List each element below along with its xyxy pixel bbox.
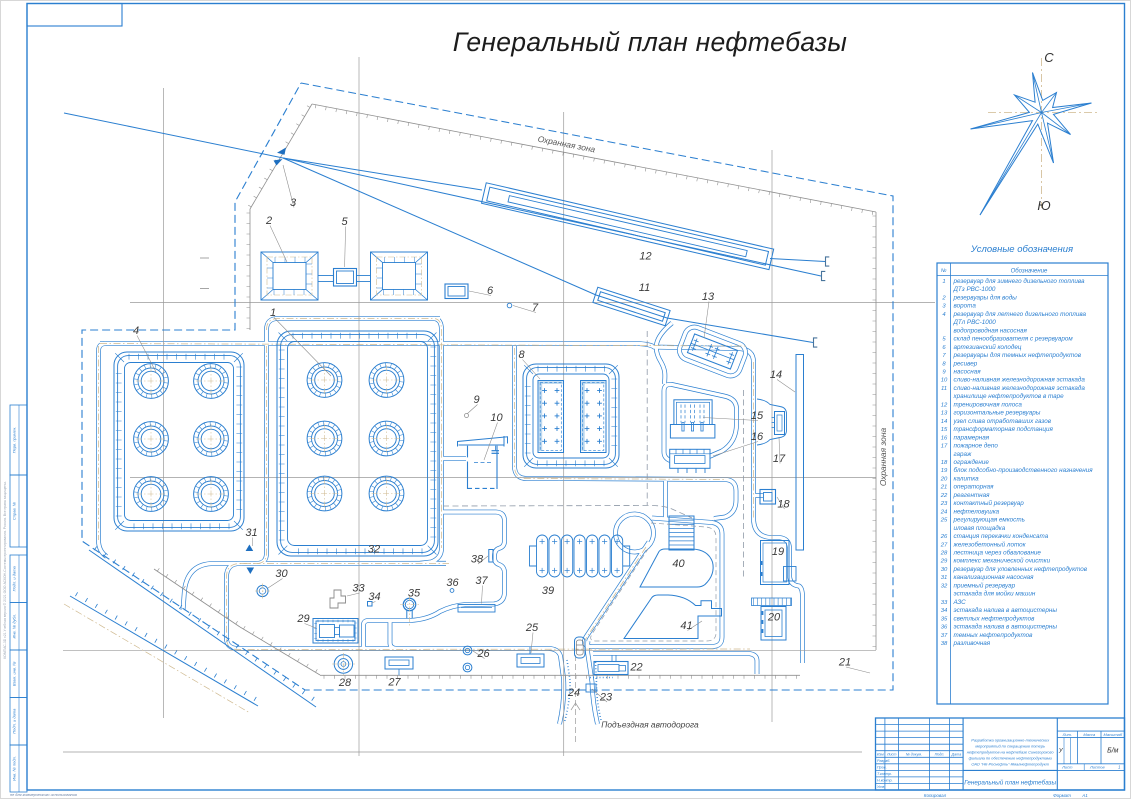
svg-text:пожарное депо: пожарное депо: [954, 442, 999, 450]
svg-text:узел слива отработавших газов: узел слива отработавших газов: [953, 417, 1052, 425]
svg-text:Ю: Ю: [1037, 198, 1050, 213]
svg-text:21: 21: [940, 485, 948, 491]
svg-text:резервуары для воды: резервуары для воды: [953, 294, 1018, 302]
svg-text:иловая площадка: иловая площадка: [954, 524, 1006, 532]
svg-text:23: 23: [599, 692, 613, 704]
svg-text:калитка: калитка: [954, 476, 980, 483]
svg-text:темных нефтепродуктов: темных нефтепродуктов: [954, 631, 1034, 639]
svg-text:11: 11: [941, 386, 947, 392]
svg-text:18: 18: [941, 460, 948, 466]
svg-text:нефтеловушка: нефтеловушка: [954, 508, 1000, 515]
svg-text:мероприятий по сокращению поте: мероприятий по сокращению потерь: [975, 744, 1045, 749]
svg-text:33: 33: [941, 600, 948, 606]
svg-text:№: №: [941, 268, 947, 274]
svg-text:35: 35: [941, 616, 948, 622]
svg-text:склад пенообразователя с резер: склад пенообразователя с резервуаром: [954, 335, 1074, 343]
svg-text:17: 17: [773, 453, 786, 465]
svg-text:водопроводная насосная: водопроводная насосная: [954, 326, 1028, 334]
svg-text:19: 19: [941, 468, 948, 474]
svg-text:20: 20: [767, 612, 781, 624]
svg-text:31: 31: [245, 527, 257, 539]
svg-text:Взам. инв. №: Взам. инв. №: [12, 661, 17, 686]
svg-text:парамерная: парамерная: [954, 434, 990, 441]
svg-text:9: 9: [473, 394, 479, 406]
svg-text:33: 33: [352, 583, 365, 595]
svg-text:тренировочная полоса: тренировочная полоса: [954, 401, 1023, 408]
svg-text:лестница через обвалование: лестница через обвалование: [953, 549, 1042, 557]
svg-text:станция перекачки конденсата: станция перекачки конденсата: [954, 532, 1049, 540]
svg-text:сливо-наливная железнодорожная: сливо-наливная железнодорожная эстакада: [954, 384, 1086, 392]
svg-text:гараж: гараж: [954, 451, 973, 458]
svg-text:21: 21: [838, 657, 851, 669]
svg-text:Подъездная автодорога: Подъездная автодорога: [601, 720, 699, 730]
svg-text:железобетонный лоток: железобетонный лоток: [953, 540, 1027, 548]
svg-text:24: 24: [567, 687, 580, 699]
svg-text:Масштаб: Масштаб: [1103, 732, 1122, 737]
svg-text:регулирующая емкость: регулирующая емкость: [953, 517, 1025, 524]
svg-text:32: 32: [941, 583, 948, 589]
svg-text:артезианский колодец: артезианский колодец: [954, 343, 1022, 351]
svg-text:АЗС: АЗС: [953, 599, 967, 606]
svg-text:2: 2: [941, 296, 946, 302]
svg-text:Инв. № дубл.: Инв. № дубл.: [12, 614, 17, 639]
svg-text:резервуар для летнего дизельно: резервуар для летнего дизельного топлива: [953, 310, 1087, 318]
svg-text:30: 30: [941, 567, 948, 573]
svg-text:Инв. № подл.: Инв. № подл.: [12, 756, 17, 781]
svg-text:Масса: Масса: [1083, 732, 1096, 737]
svg-text:6: 6: [487, 285, 494, 297]
svg-text:Лист: Лист: [1061, 765, 1073, 770]
svg-text:41: 41: [680, 620, 692, 632]
svg-text:горизонтальные резервуары: горизонтальные резервуары: [954, 410, 1041, 417]
svg-text:3: 3: [290, 197, 297, 209]
svg-text:Утв.: Утв.: [877, 785, 885, 789]
svg-text:34: 34: [941, 608, 948, 614]
svg-text:16: 16: [751, 431, 764, 443]
svg-text:Генеральный план нефтебазы: Генеральный план нефтебазы: [453, 27, 847, 57]
svg-text:ДТл РВС-1000: ДТл РВС-1000: [953, 319, 997, 326]
svg-text:25: 25: [940, 518, 948, 524]
svg-text:32: 32: [368, 544, 380, 556]
svg-text:комплекс механической очистки: комплекс механической очистки: [954, 557, 1051, 565]
svg-text:разливочная: разливочная: [953, 640, 991, 647]
svg-text:1: 1: [270, 307, 276, 319]
svg-text:Условные обозначения: Условные обозначения: [970, 244, 1073, 255]
svg-text:Охранная зона: Охранная зона: [878, 428, 888, 487]
svg-text:Лист: Лист: [886, 752, 897, 756]
svg-text:28: 28: [940, 551, 948, 557]
svg-text:Листов: Листов: [1089, 765, 1105, 770]
svg-text:27: 27: [387, 677, 401, 689]
svg-text:ОАО "НК-Роснефть"-Ямалнефтепро: ОАО "НК-Роснефть"-Ямалнефтепродукт: [971, 762, 1049, 767]
svg-text:36: 36: [446, 577, 459, 589]
svg-text:17: 17: [941, 444, 948, 450]
svg-text:14: 14: [770, 369, 782, 381]
svg-text:20: 20: [940, 477, 948, 483]
svg-text:26: 26: [476, 648, 490, 660]
svg-text:Обозначение: Обозначение: [1011, 269, 1048, 275]
svg-text:10: 10: [490, 412, 503, 424]
svg-text:Б/м: Б/м: [1107, 748, 1119, 755]
svg-text:Лит.: Лит.: [1062, 732, 1072, 737]
svg-text:Подп.: Подп.: [935, 752, 945, 756]
svg-text:Перв. примен.: Перв. примен.: [12, 427, 17, 454]
svg-text:18: 18: [777, 499, 790, 511]
svg-text:1: 1: [1118, 765, 1120, 770]
svg-text:Н.контр.: Н.контр.: [877, 779, 893, 783]
svg-text:24: 24: [940, 509, 948, 515]
svg-text:контактный резервуар: контактный резервуар: [954, 499, 1025, 507]
svg-text:38: 38: [941, 641, 948, 647]
svg-text:С: С: [1044, 50, 1054, 65]
svg-text:29: 29: [296, 613, 309, 625]
svg-text:ресивер: ресивер: [953, 360, 978, 367]
svg-text:27: 27: [940, 542, 948, 548]
svg-text:39: 39: [542, 585, 554, 597]
svg-text:12: 12: [941, 402, 948, 408]
svg-text:ДТз РВС-1000: ДТз РВС-1000: [953, 286, 996, 293]
svg-text:А1: А1: [1081, 793, 1088, 798]
svg-text:насосная: насосная: [954, 369, 982, 376]
svg-text:Дата: Дата: [951, 752, 962, 756]
svg-text:эстакада налива в автоцистерны: эстакада налива в автоцистерны: [954, 623, 1058, 631]
svg-text:25: 25: [525, 622, 539, 634]
svg-text:7: 7: [532, 302, 539, 314]
svg-text:5: 5: [342, 216, 349, 228]
svg-text:резервуары для темных нефтепро: резервуары для темных нефтепродуктов: [953, 351, 1082, 359]
svg-text:30: 30: [275, 568, 288, 580]
svg-text:22: 22: [940, 493, 948, 499]
svg-text:15: 15: [751, 410, 764, 422]
svg-text:светлых нефтепродуктов: светлых нефтепродуктов: [954, 614, 1036, 622]
svg-text:36: 36: [941, 625, 948, 631]
svg-text:нефтепродуктов на нефтебазе Си: нефтепродуктов на нефтебазе Синегорского: [967, 750, 1055, 755]
svg-text:эстакада для мойки машин: эстакада для мойки машин: [954, 590, 1036, 598]
svg-text:14: 14: [941, 419, 948, 425]
svg-text:8: 8: [518, 349, 525, 361]
svg-text:1: 1: [942, 279, 945, 285]
svg-text:Подп. и дата: Подп. и дата: [12, 708, 17, 734]
svg-text:28: 28: [338, 677, 352, 689]
svg-text:Копировал: Копировал: [924, 793, 947, 798]
svg-text:29: 29: [940, 559, 948, 565]
svg-text:сливо-наливная железнодорожная: сливо-наливная железнодорожная эстакада: [954, 376, 1086, 384]
svg-text:2: 2: [265, 215, 272, 227]
svg-text:12: 12: [639, 251, 651, 263]
svg-text:ограждение: ограждение: [954, 458, 990, 466]
svg-text:Разработка организационно-техн: Разработка организационно-технических: [971, 738, 1050, 743]
svg-text:канализационная насосная: канализационная насосная: [954, 574, 1035, 581]
svg-text:19: 19: [772, 546, 784, 558]
svg-text:приемный резервуар: приемный резервуар: [954, 581, 1016, 589]
svg-text:резервуар для уловленных нефте: резервуар для уловленных нефтепродуктов: [953, 565, 1088, 573]
svg-text:Генеральный план нефтебазы: Генеральный план нефтебазы: [964, 779, 1056, 787]
svg-text:резервуар для зимнего дизельно: резервуар для зимнего дизельного топлива: [953, 277, 1086, 285]
svg-text:38: 38: [471, 554, 484, 566]
svg-text:Подп. и дата: Подп. и дата: [12, 566, 17, 592]
svg-text:ворота: ворота: [954, 303, 977, 310]
svg-text:23: 23: [940, 501, 948, 507]
svg-text:№ докум.: № докум.: [906, 752, 922, 756]
svg-text:37: 37: [941, 633, 948, 639]
svg-text:Справ. №: Справ. №: [12, 501, 17, 520]
svg-text:Изм: Изм: [877, 752, 884, 756]
svg-text:10: 10: [941, 378, 948, 384]
svg-text:13: 13: [941, 411, 948, 417]
svg-text:31: 31: [941, 575, 948, 581]
svg-text:34: 34: [368, 591, 380, 603]
svg-text:26: 26: [940, 534, 948, 540]
svg-text:блок подсобно-производственног: блок подсобно-производственного назначен…: [954, 466, 1094, 474]
svg-text:эстакада налива в автоцистерны: эстакада налива в автоцистерны: [954, 606, 1058, 614]
svg-text:35: 35: [408, 588, 421, 600]
svg-text:не для коммерческого использов: не для коммерческого использования: [10, 793, 77, 797]
svg-text:Разраб.: Разраб.: [877, 759, 890, 763]
svg-text:11: 11: [639, 282, 650, 294]
svg-text:Пров.: Пров.: [877, 766, 887, 770]
svg-text:4: 4: [133, 325, 139, 337]
svg-text:реагентная: реагентная: [953, 492, 991, 499]
svg-text:операторная: операторная: [954, 484, 995, 491]
svg-text:филиала по обеспечению нефтепр: филиала по обеспечению нефтепродуктами: [969, 756, 1053, 761]
svg-text:трансформаторная подстанция: трансформаторная подстанция: [954, 425, 1054, 433]
svg-text:37: 37: [475, 575, 488, 587]
svg-text:22: 22: [629, 662, 642, 674]
svg-text:15: 15: [941, 427, 948, 433]
svg-text:Формат: Формат: [1053, 793, 1071, 798]
svg-text:КОМПАС-3D v21 Учебная версия ©: КОМПАС-3D v21 Учебная версия © 2021 ООО …: [3, 481, 7, 659]
svg-text:Т.контр.: Т.контр.: [877, 772, 892, 776]
svg-text:13: 13: [702, 291, 715, 303]
svg-text:40: 40: [672, 558, 685, 570]
svg-text:хранилище нефтепродуктов в тар: хранилище нефтепродуктов в таре: [953, 392, 1065, 400]
svg-text:16: 16: [941, 435, 948, 441]
